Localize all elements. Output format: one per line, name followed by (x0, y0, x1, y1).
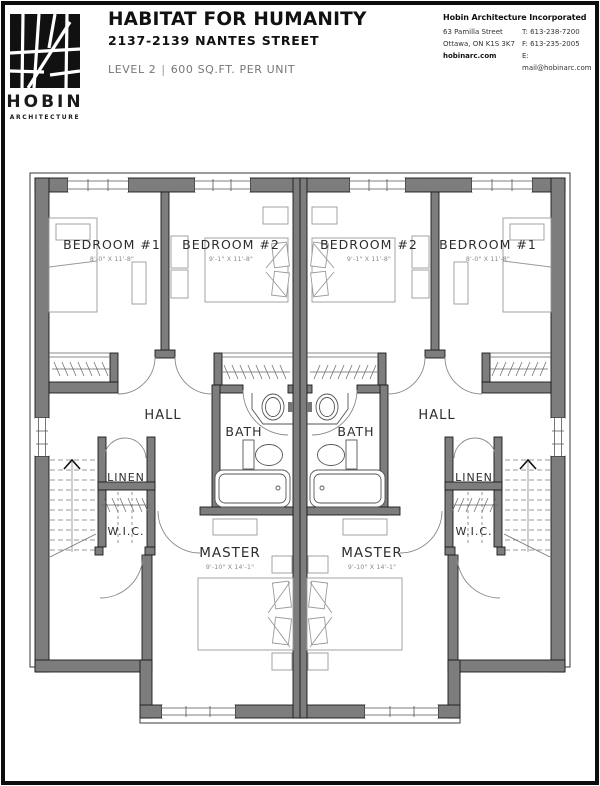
toilet-icon (256, 445, 283, 466)
contact-street: 63 Pamilla Street (443, 26, 522, 38)
room-label-bedroom1-right: BEDROOM #1 (439, 237, 537, 252)
room-dim-master-right: 9'-10" X 14'-1" (348, 564, 396, 571)
contact-email: E: mail@hobinarc.com (522, 50, 593, 74)
room-label-bedroom2-left: BEDROOM #2 (182, 237, 280, 252)
room-dim-bedroom2-right: 9'-1" X 11'-8" (347, 256, 391, 263)
room-dim-bedroom2-left: 9'-1" X 11'-8" (209, 256, 253, 263)
contact-phone: T: 613-238-7200 (522, 26, 593, 38)
bath-fixtures (215, 393, 293, 507)
contact-website: hobinarc.com (443, 50, 522, 74)
caption-separator: | (156, 63, 170, 76)
room-label-linen-right: LINEN (455, 471, 493, 484)
contact-fax: F: 613-235-2005 (522, 38, 593, 50)
room-label-hall-left: HALL (144, 408, 181, 423)
unit-plan-mirrored (300, 173, 570, 723)
room-dim-master-left: 9'-10" X 14'-1" (206, 564, 254, 571)
floor-plan-svg: BEDROOM #1 8'-0" X 11'-8" BEDROOM #2 9'-… (0, 166, 600, 786)
drawing-sheet: HOBIN ARCHITECTURE HABITAT FOR HUMANITY … (0, 0, 600, 786)
room-label-wic-left: W.I.C. (107, 525, 144, 538)
room-label-bath-right: BATH (337, 424, 374, 439)
logo-subtitle: ARCHITECTURE (2, 114, 88, 121)
level-caption: LEVEL 2|600 SQ.FT. PER UNIT (108, 63, 295, 76)
room-label-master-left: MASTER (199, 545, 261, 561)
area-label: 600 SQ.FT. PER UNIT (171, 63, 296, 76)
sheet-title: HABITAT FOR HUMANITY (108, 9, 367, 30)
room-label-bath-left: BATH (225, 424, 262, 439)
room-label-hall-right: HALL (418, 408, 455, 423)
room-dim-bedroom1-left: 8'-0" X 11'-8" (90, 256, 134, 263)
level-label: LEVEL 2 (108, 63, 156, 76)
contact-city: Ottawa, ON K1S 3K7 (443, 38, 522, 50)
unit-plan-geometry (30, 173, 300, 723)
room-label-linen-left: LINEN (107, 471, 145, 484)
project-address: 2137-2139 NANTES STREET (108, 33, 319, 48)
contact-block: Hobin Architecture Incorporated 63 Pamil… (443, 12, 593, 74)
toilet-tank (243, 440, 254, 469)
stairs (50, 460, 96, 557)
room-label-bedroom2-right: BEDROOM #2 (320, 237, 418, 252)
floor-plan: BEDROOM #1 8'-0" X 11'-8" BEDROOM #2 9'-… (0, 166, 600, 786)
room-dim-bedroom1-right: 8'-0" X 11'-8" (466, 256, 510, 263)
logo-wordmark: HOBIN (2, 92, 88, 112)
hobin-logo-icon (10, 14, 80, 88)
room-label-wic-right: W.I.C. (455, 525, 492, 538)
room-label-master-right: MASTER (341, 545, 403, 561)
room-label-bedroom1-left: BEDROOM #1 (63, 237, 161, 252)
company-name: Hobin Architecture Incorporated (443, 12, 593, 24)
